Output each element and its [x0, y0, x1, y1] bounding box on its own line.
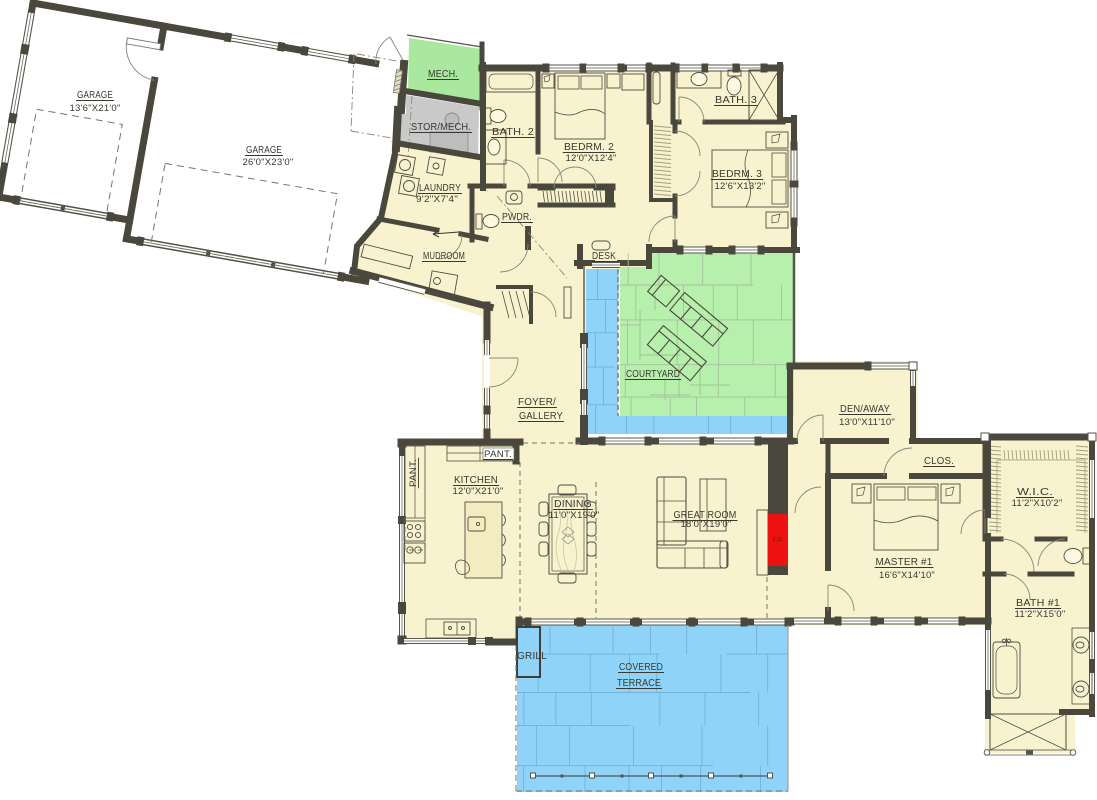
svg-text:BEDRM. 2: BEDRM. 2: [564, 141, 614, 153]
svg-text:PANT.: PANT.: [408, 459, 419, 487]
svg-text:11'0"X19'0": 11'0"X19'0": [549, 510, 600, 520]
svg-text:PWDR.: PWDR.: [502, 212, 532, 223]
svg-text:13'0"X11'10": 13'0"X11'10": [839, 417, 895, 427]
svg-text:KITCHEN: KITCHEN: [454, 474, 498, 486]
svg-text:GRILL: GRILL: [517, 651, 547, 662]
svg-text:COURTYARD: COURTYARD: [626, 369, 680, 380]
svg-text:13'6"X21'0": 13'6"X21'0": [70, 103, 121, 113]
svg-text:GARAGE: GARAGE: [246, 145, 282, 156]
svg-text:DESK: DESK: [592, 251, 616, 262]
svg-text:16'6"X14'10": 16'6"X14'10": [879, 570, 935, 580]
svg-text:12'0"X21'0": 12'0"X21'0": [453, 486, 504, 496]
svg-text:11'2"X15'0": 11'2"X15'0": [1015, 609, 1066, 619]
svg-text:W.I.C.: W.I.C.: [1017, 487, 1053, 498]
svg-text:BEDRM. 3: BEDRM. 3: [712, 168, 762, 180]
svg-text:GALLERY: GALLERY: [519, 410, 563, 422]
svg-text:BATH. 3: BATH. 3: [715, 95, 757, 106]
svg-text:CLOS.: CLOS.: [924, 456, 954, 467]
svg-text:FOYER/: FOYER/: [518, 396, 556, 408]
svg-text:TERRACE: TERRACE: [617, 677, 661, 689]
svg-text:MASTER #1: MASTER #1: [876, 556, 933, 568]
svg-text:MUDROOM: MUDROOM: [423, 251, 465, 262]
svg-text:DEN/AWAY: DEN/AWAY: [840, 403, 890, 415]
svg-text:12'0"X12'4": 12'0"X12'4": [566, 153, 617, 163]
svg-text:PANT.: PANT.: [484, 449, 512, 460]
svg-text:BATH #1: BATH #1: [1016, 597, 1060, 609]
svg-text:BATH. 2: BATH. 2: [492, 127, 534, 138]
svg-text:GARAGE: GARAGE: [77, 90, 113, 101]
svg-text:26'0"X23'0": 26'0"X23'0": [243, 157, 294, 167]
svg-text:12'6"X13'2": 12'6"X13'2": [715, 181, 766, 191]
svg-text:LAUNDRY: LAUNDRY: [419, 183, 461, 194]
svg-text:18'0"X19'0": 18'0"X19'0": [681, 519, 732, 529]
svg-text:STOR/MECH.: STOR/MECH.: [411, 122, 471, 133]
svg-text:9'2"X7'4": 9'2"X7'4": [416, 194, 458, 204]
svg-text:11'2"X10'2": 11'2"X10'2": [1012, 498, 1063, 508]
svg-text:COVERED: COVERED: [619, 661, 663, 673]
svg-text:MECH.: MECH.: [428, 69, 458, 80]
svg-text:F.P.: F.P.: [773, 537, 784, 544]
svg-text:DINING: DINING: [554, 498, 592, 510]
